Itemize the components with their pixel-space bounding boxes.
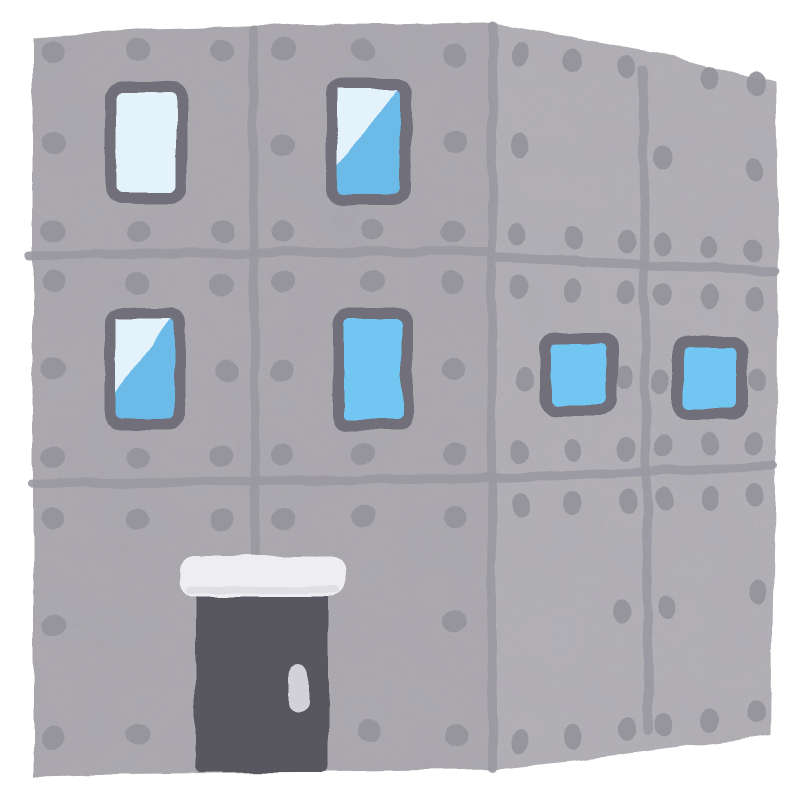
illustration-canvas <box>0 0 800 800</box>
tie-hole-dot <box>443 45 467 67</box>
tie-hole-dot <box>360 270 384 292</box>
tie-hole-dot <box>748 581 766 605</box>
tie-hole-dot <box>441 359 465 381</box>
front-vertical-seam <box>253 30 255 556</box>
tie-hole-dot <box>360 219 384 241</box>
tie-hole-dot <box>746 157 764 181</box>
window-1 <box>105 82 187 204</box>
tie-hole-dot <box>357 720 381 742</box>
front-horizontal-seam-1 <box>30 251 492 255</box>
tie-hole-dot <box>271 361 295 383</box>
window-4-glass <box>343 319 402 419</box>
tie-hole-dot <box>126 272 150 294</box>
tie-hole-dot <box>41 271 65 293</box>
tie-hole-dot <box>613 599 631 623</box>
tie-hole-dot <box>658 594 676 618</box>
tie-hole-dot <box>210 273 234 295</box>
tie-hole-dot <box>271 133 295 155</box>
tie-hole-dot <box>210 220 234 242</box>
tie-hole-dot <box>618 490 636 514</box>
side-vertical-seam <box>643 69 648 731</box>
tie-hole-dot <box>441 272 465 294</box>
tie-hole-dot <box>618 229 636 253</box>
tie-hole-dot <box>271 39 295 61</box>
tie-hole-dot <box>564 49 582 73</box>
tie-hole-dot <box>618 436 636 460</box>
window-2 <box>326 78 412 205</box>
tie-hole-dot <box>443 507 467 529</box>
tie-hole-dot <box>564 278 582 302</box>
tie-hole-dot <box>654 488 672 512</box>
tie-hole-dot <box>215 361 239 383</box>
tie-hole-dot <box>701 285 719 309</box>
tie-hole-dot <box>616 366 634 390</box>
tie-hole-dot <box>744 238 762 262</box>
front-horizontal-seam-2 <box>32 478 492 484</box>
tie-hole-dot <box>41 614 65 636</box>
tie-hole-dot <box>618 55 636 79</box>
tie-hole-dot <box>41 132 65 154</box>
tie-hole-dot <box>126 724 150 746</box>
window-3 <box>105 308 185 430</box>
tie-hole-dot <box>701 235 719 259</box>
tie-hole-dot <box>126 508 150 530</box>
tie-hole-dot <box>509 274 527 298</box>
tie-hole-dot <box>41 446 65 468</box>
tie-hole-dot <box>351 39 375 61</box>
tie-hole-dot <box>564 725 582 749</box>
tie-hole-dot <box>746 287 764 311</box>
tie-hole-dot <box>351 505 375 527</box>
window-6-glass <box>684 347 736 409</box>
window-6 <box>673 336 747 420</box>
tie-hole-dot <box>654 434 672 458</box>
tie-hole-dot <box>618 717 636 741</box>
tie-hole-dot <box>41 507 65 529</box>
window-1-glass <box>116 93 176 193</box>
tie-hole-dot <box>41 219 65 241</box>
window-5-glass <box>551 343 607 405</box>
tie-hole-dot <box>126 221 150 243</box>
tie-hole-dot <box>210 39 234 61</box>
tie-hole-dot <box>654 232 672 256</box>
tie-hole-dot <box>701 708 719 732</box>
tie-hole-dot <box>271 443 295 465</box>
tie-hole-dot <box>654 146 672 170</box>
tie-hole-dot <box>564 492 582 516</box>
door-handle <box>288 664 308 712</box>
tie-hole-dot <box>564 226 582 250</box>
tie-hole-dot <box>746 431 764 455</box>
tie-hole-dot <box>351 442 375 464</box>
tie-hole-dot <box>441 221 465 243</box>
window-5 <box>540 332 618 416</box>
tie-hole-dot <box>701 486 719 510</box>
tie-hole-dot <box>126 447 150 469</box>
tie-hole-dot <box>210 509 234 531</box>
tie-hole-dot <box>210 444 234 466</box>
entrance-door <box>196 592 328 772</box>
tie-hole-dot <box>654 713 672 737</box>
entrance <box>180 556 346 772</box>
tie-hole-dot <box>652 369 670 393</box>
tie-hole-dot <box>748 368 766 392</box>
tie-hole-dot <box>618 281 636 305</box>
tie-hole-dot <box>271 508 295 530</box>
tie-hole-dot <box>126 39 150 61</box>
tie-hole-dot <box>511 729 529 753</box>
tie-hole-dot <box>701 65 719 89</box>
tie-hole-dot <box>41 41 65 63</box>
tie-hole-dot <box>511 134 529 158</box>
tie-hole-dot <box>41 357 65 379</box>
tie-hole-dot <box>516 367 534 391</box>
tie-hole-dot <box>748 72 766 96</box>
tie-hole-dot <box>41 727 65 749</box>
tie-hole-dot <box>746 483 764 507</box>
door-lintel-shade <box>186 586 340 593</box>
tie-hole-dot <box>701 432 719 456</box>
tie-hole-dot <box>443 131 467 153</box>
tie-hole-dot <box>271 221 295 243</box>
tie-hole-dot <box>443 609 467 631</box>
tie-hole-dot <box>271 272 295 294</box>
tie-hole-dot <box>443 444 467 466</box>
tie-hole-dot <box>511 494 529 518</box>
tie-hole-dot <box>654 283 672 307</box>
tie-hole-dot <box>511 440 529 464</box>
concrete-building-illustration <box>0 0 800 800</box>
tie-hole-dot <box>511 42 529 66</box>
tie-hole-dot <box>445 726 469 748</box>
tie-hole-dot <box>748 700 766 724</box>
window-4 <box>332 308 413 430</box>
tie-hole-dot <box>509 222 527 246</box>
tie-hole-dot <box>564 438 582 462</box>
